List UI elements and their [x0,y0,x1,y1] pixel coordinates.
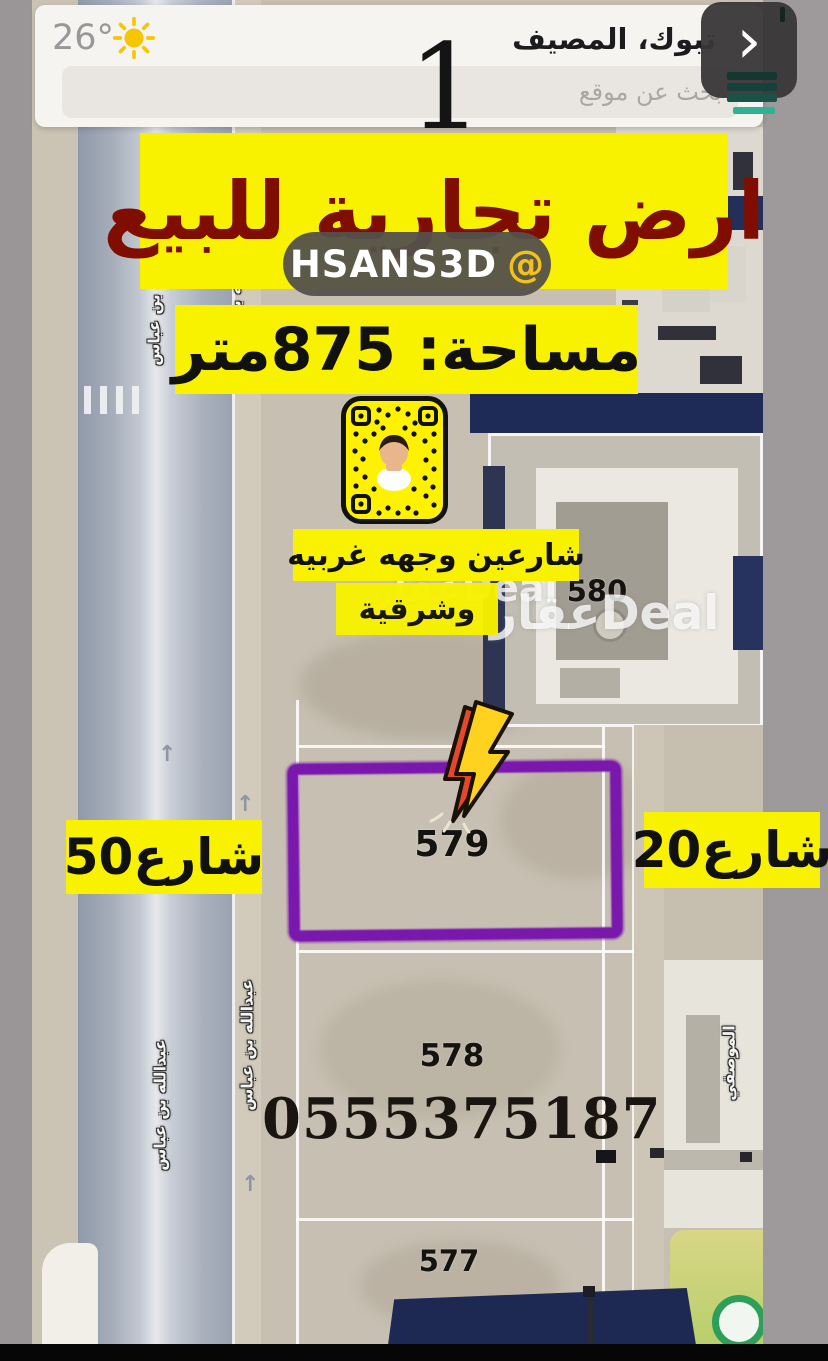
building-shadow [700,356,742,384]
building-roof-navy [470,393,763,433]
snapcode [341,396,448,524]
street-name-label-right: الموصقي [720,1025,739,1100]
nav-tick [780,7,785,22]
temperature-label: 26° [52,18,114,58]
bottom-black-bar [0,1344,828,1361]
map-marker-dark [583,1286,595,1297]
snapcode-pattern [346,401,443,519]
plot-line-horizontal [296,950,635,953]
street-name-label: عبدالله بن عباس [151,1039,170,1171]
road-arrow-icon: ↑ [158,742,176,767]
plot-line-horizontal [296,1218,635,1221]
phone-number: 0555375187 [262,1086,642,1152]
right-building-patch [686,1015,720,1143]
search-input[interactable] [62,66,738,118]
map-logo-green [712,1295,766,1349]
building-shadow [740,1152,752,1162]
road-arrow-icon: ↑ [236,792,254,817]
road-arrow-icon: ↑ [241,1172,259,1197]
compound-shadow [560,668,620,698]
street-50-label: شارع50 [66,820,262,894]
overlay-digit: 1 [408,28,483,146]
at-sign-icon: @ [507,243,544,286]
map-pole [588,1300,593,1345]
frontage-label-1: شارعين وجهه غربيه [293,529,579,581]
snap-username: HSANS3D [290,243,497,286]
street-name-label: عبدالله بن عباس [238,979,257,1111]
sun-icon [112,16,156,60]
search-bar [62,66,738,118]
chevron-right-icon: › [722,8,776,74]
crosswalk [84,386,146,414]
street-20-label: شارع20 [644,812,820,888]
menu-line-icon [733,107,775,114]
building-shadow [658,326,716,340]
snapcode-avatar [377,435,411,491]
menu-line-icon [727,72,777,80]
sand-shoulder [32,0,78,1345]
letterbox-left [0,0,32,1361]
plot-label-578: 578 [412,1038,492,1074]
menu-line-icon [727,94,777,102]
frontage-label-2: وشرقية [336,583,498,635]
area-banner: مساحة: 875متر [175,305,638,394]
building-roof-navy [733,556,763,650]
plot-label-577: 577 [409,1244,489,1278]
watermark: عقارDeal [490,586,719,641]
menu-line-icon [727,83,777,91]
screenshot-stage: عبدالله بن عباس عبدالله بن عباس عبدالله … [0,0,828,1361]
letterbox-right [763,0,828,1361]
lightning-bolt-icon [424,694,514,834]
snap-username-pill: HSANS3D @ [283,232,551,296]
